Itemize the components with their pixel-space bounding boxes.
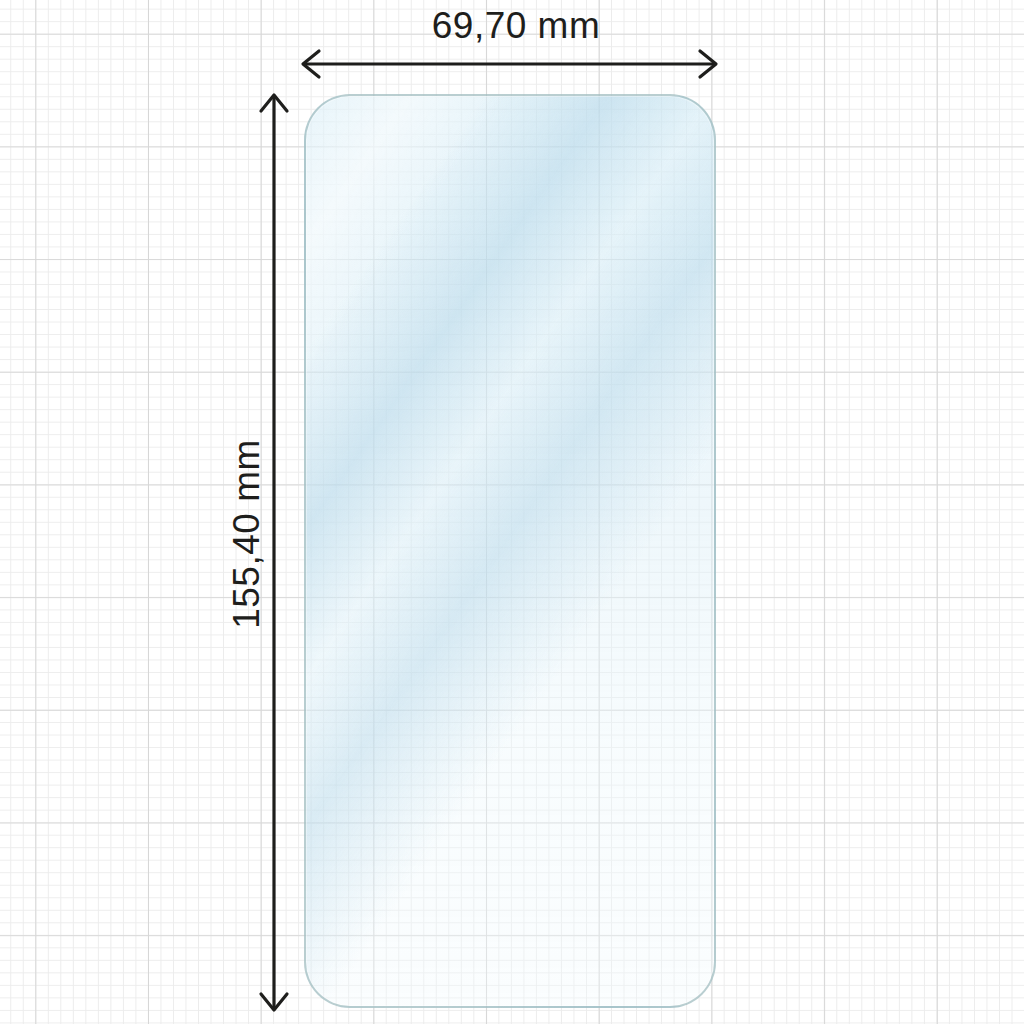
height-dimension-label: 155,40 mm (227, 439, 268, 629)
arrowhead-right-icon (700, 51, 716, 77)
arrowhead-left-icon (303, 51, 319, 77)
screen-protector-film (304, 94, 716, 1008)
width-dimension-arrow (303, 51, 716, 77)
arrowhead-bottom-icon (261, 994, 287, 1010)
arrowhead-top-icon (261, 95, 287, 111)
graph-paper-background: 69,70 mm 155,40 mm (0, 0, 1024, 1024)
width-dimension-label: 69,70 mm (432, 6, 601, 47)
